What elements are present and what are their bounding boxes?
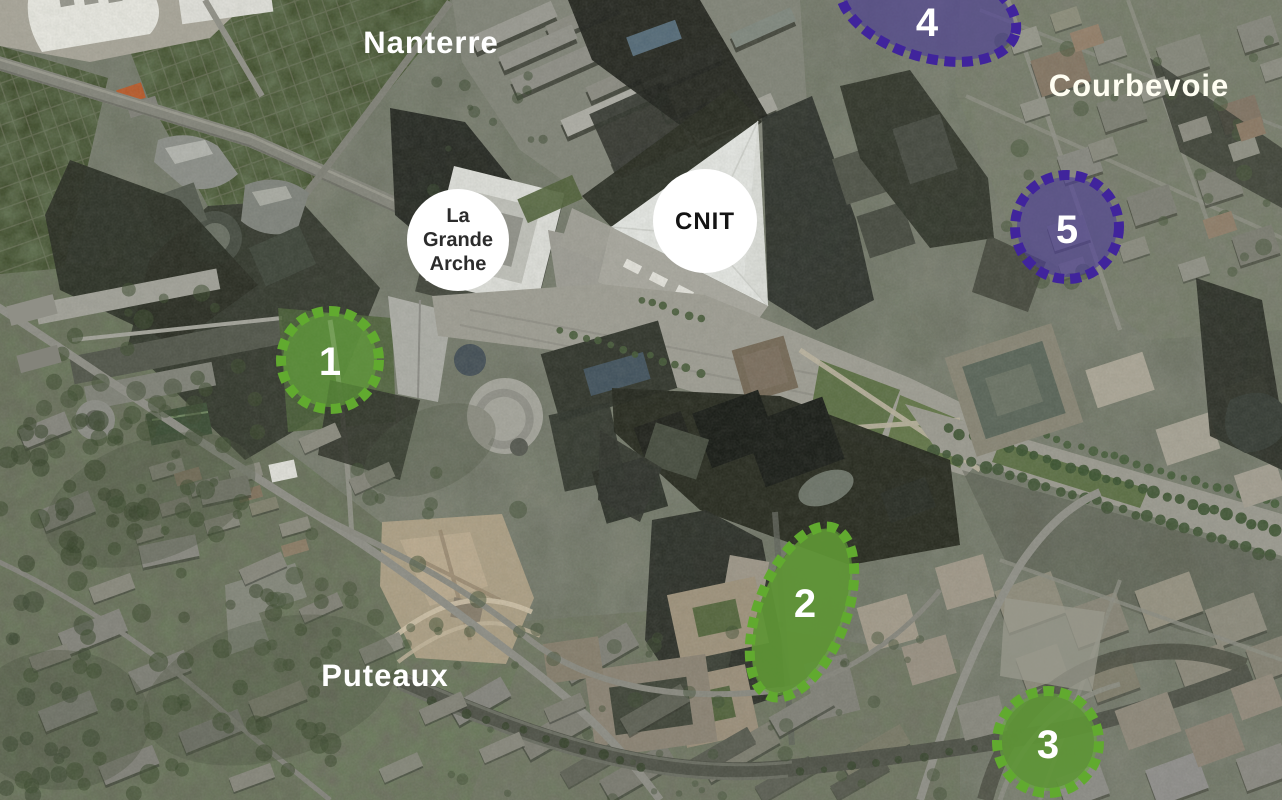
svg-text:3: 3 bbox=[1037, 723, 1059, 767]
svg-text:CNIT: CNIT bbox=[675, 208, 735, 235]
svg-text:Puteaux: Puteaux bbox=[321, 658, 449, 693]
svg-text:1: 1 bbox=[319, 340, 341, 384]
svg-text:Arche: Arche bbox=[430, 253, 487, 275]
svg-text:Courbevoie: Courbevoie bbox=[1049, 68, 1230, 103]
svg-text:Nanterre: Nanterre bbox=[363, 25, 499, 60]
svg-text:4: 4 bbox=[916, 1, 939, 45]
svg-text:Grande: Grande bbox=[423, 229, 493, 251]
svg-text:La: La bbox=[446, 205, 470, 227]
svg-text:5: 5 bbox=[1056, 208, 1078, 252]
svg-text:2: 2 bbox=[794, 582, 816, 626]
